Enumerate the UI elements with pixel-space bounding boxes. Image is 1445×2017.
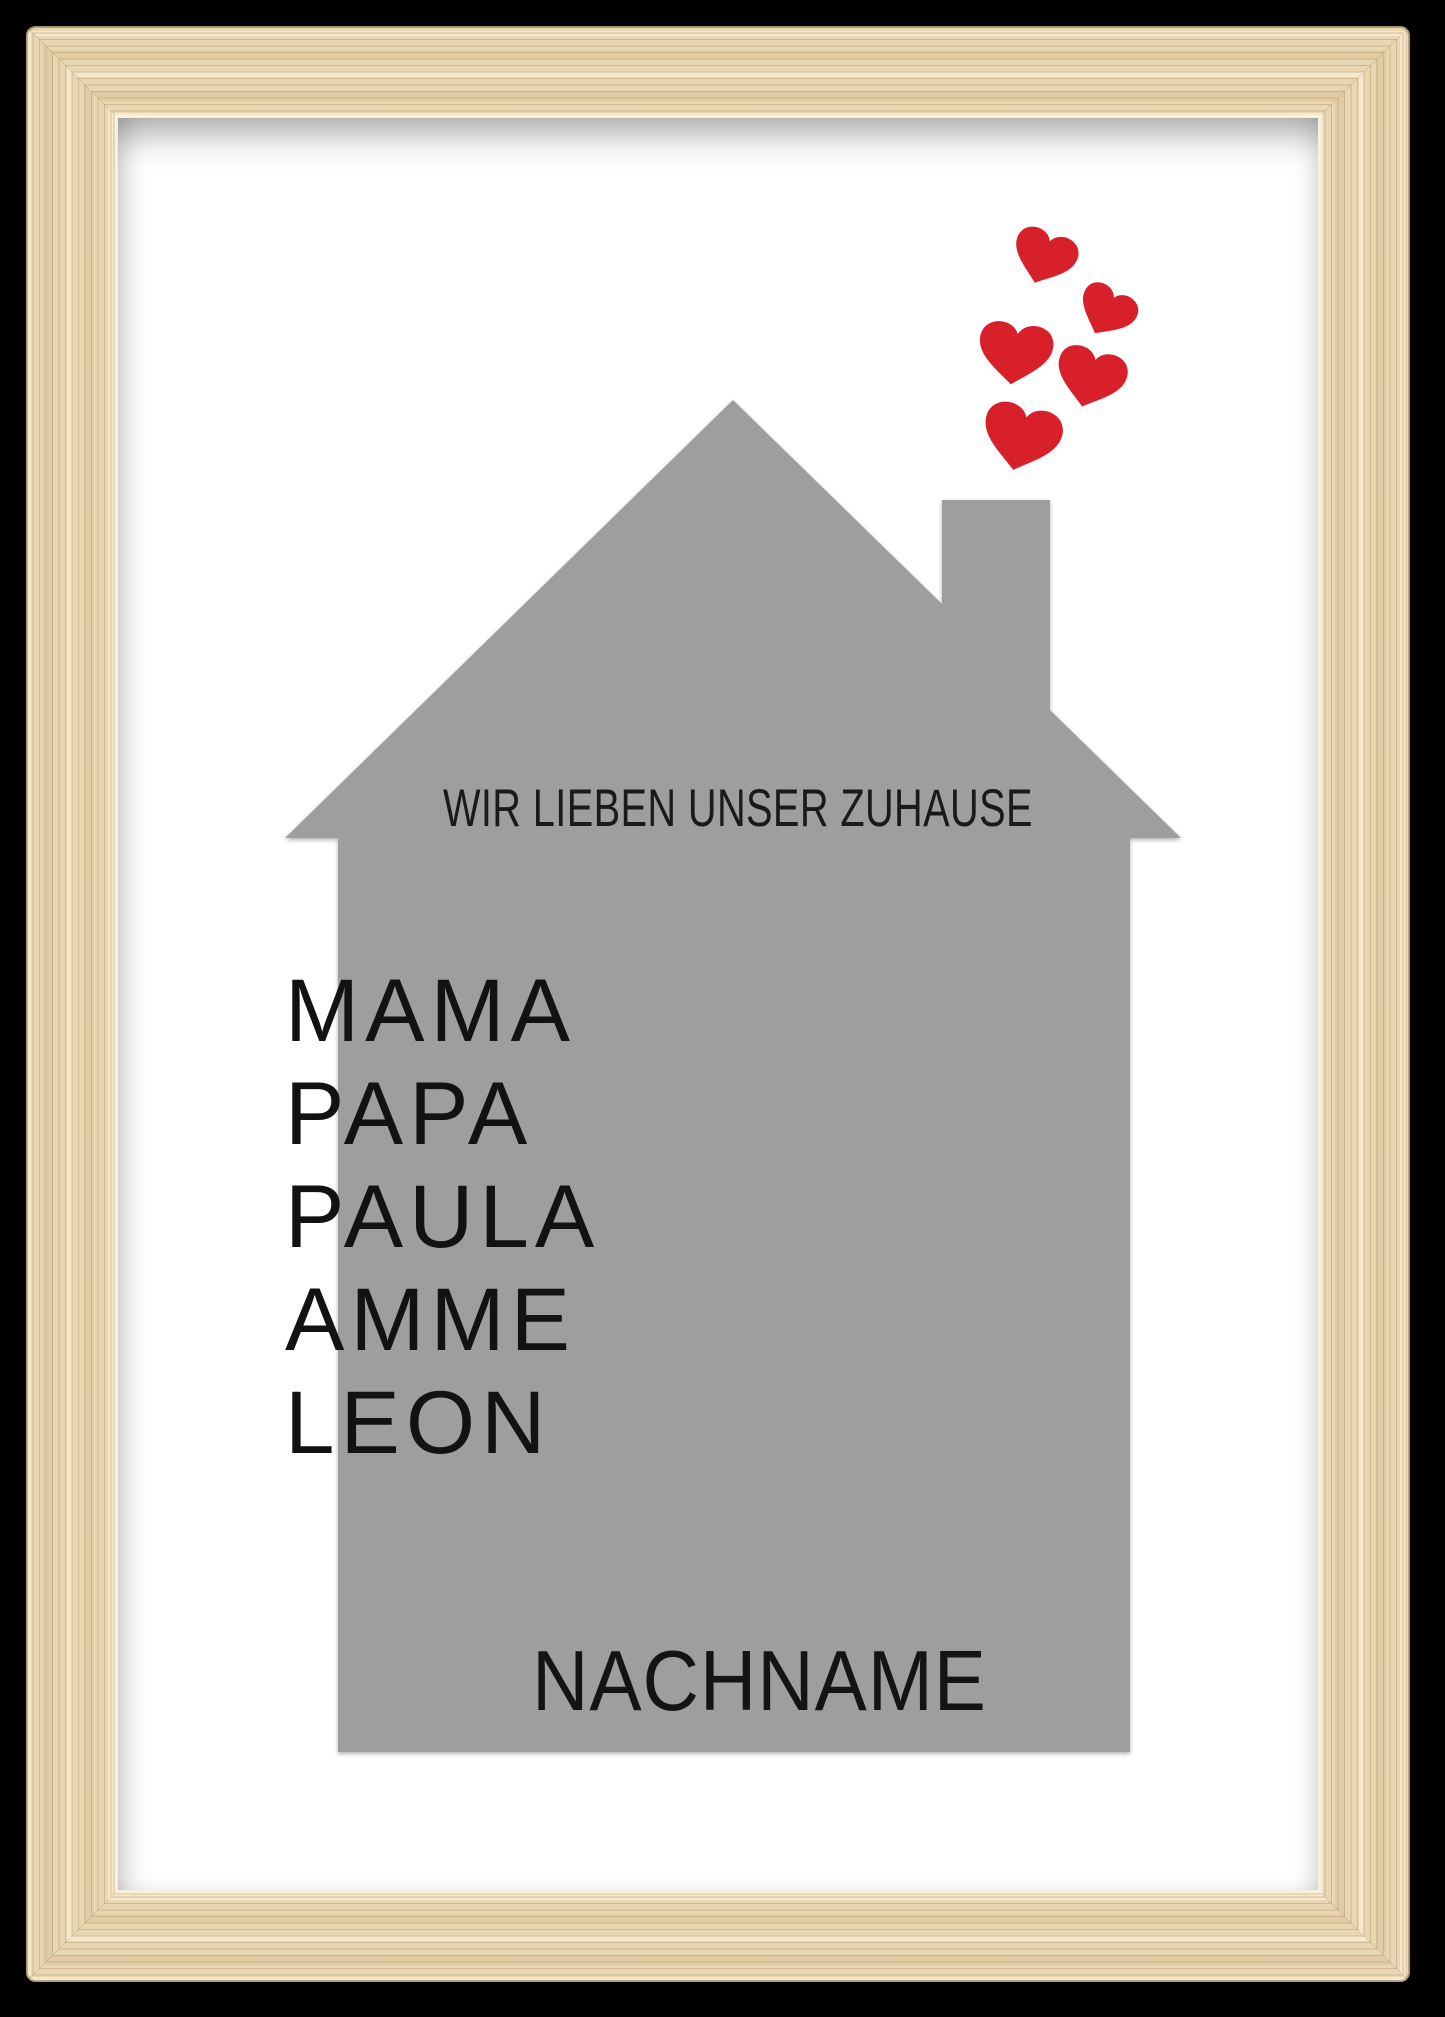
family-member-name: PAULA — [285, 1165, 600, 1268]
poster-title: WIR LIEBEN UNSER ZUHAUSE — [443, 778, 1033, 839]
frame-right-rail — [1318, 26, 1410, 1982]
family-names-list: MAMA PAPA PAULA AMME LEON — [285, 959, 600, 1474]
frame-bottom-rail — [26, 1890, 1410, 1982]
family-member-name: PAPA — [285, 1062, 600, 1165]
family-member-name: LEON — [285, 1371, 600, 1474]
family-member-name: MAMA — [285, 959, 600, 1062]
frame-top-rail — [26, 26, 1410, 118]
frame-left-rail — [26, 26, 118, 1982]
framed-poster-photo: WIR LIEBEN UNSER ZUHAUSE MAMA PAPA PAULA… — [0, 0, 1445, 2017]
surname-text: NACHNAME — [532, 1633, 987, 1731]
family-member-name: AMME — [285, 1268, 600, 1371]
